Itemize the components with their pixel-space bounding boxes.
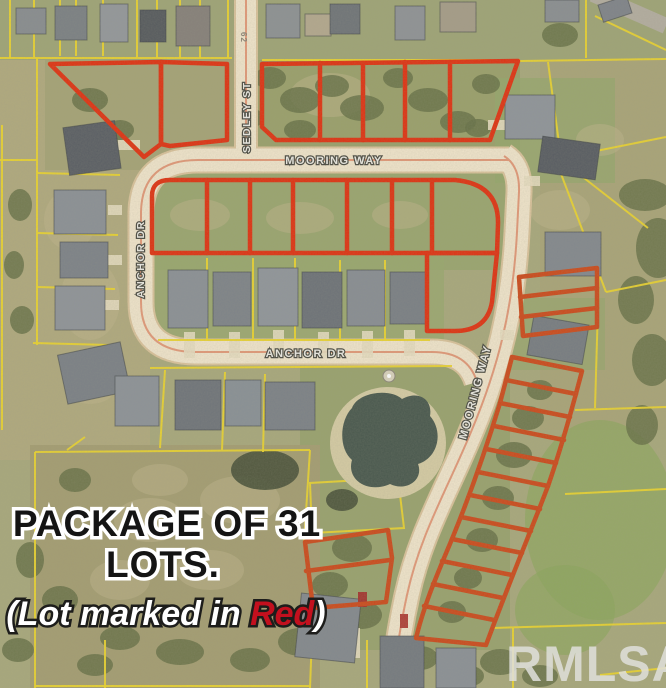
- aerial-grain-texture: [0, 0, 666, 688]
- overlay-line1: PACKAGE OF 31: [13, 503, 321, 544]
- watermark-rmlsa: RMLSA: [506, 636, 666, 688]
- overlay-line3: (Lot marked in Red): [6, 595, 325, 633]
- aerial-map-svg: MOORING WAY SEDLEY ST ANCHOR DR ANCHOR D…: [0, 0, 666, 688]
- overlay-line3-suffix: ): [311, 595, 325, 633]
- overlay-line3-red-word: Red: [250, 595, 315, 633]
- overlay-line3-prefix: (Lot marked in: [6, 595, 250, 633]
- aerial-plat-map: MOORING WAY SEDLEY ST ANCHOR DR ANCHOR D…: [0, 0, 666, 688]
- overlay-line2: LOTS.: [106, 544, 220, 585]
